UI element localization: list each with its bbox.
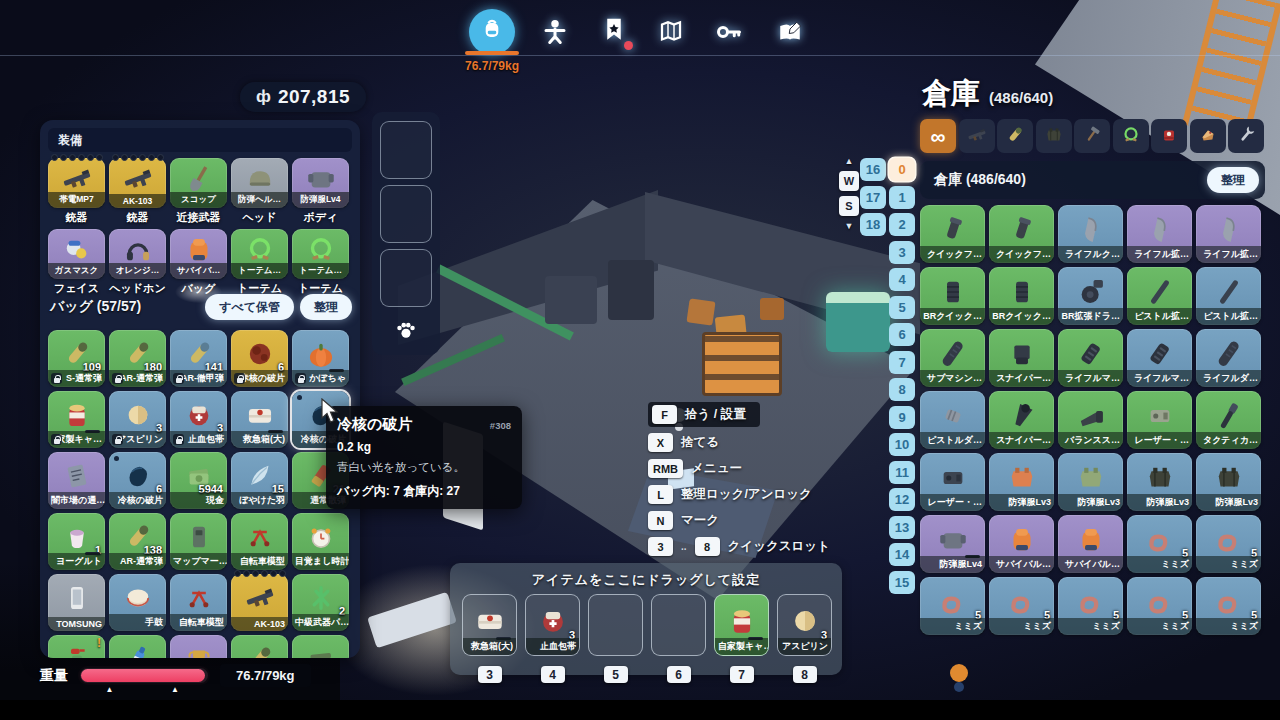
wrench-icon: [1235, 124, 1257, 149]
item-tile[interactable]: 救急箱(大): [231, 391, 288, 448]
storage-machine[interactable]: [826, 292, 890, 352]
item-label: 防弾服Lv3: [989, 494, 1054, 511]
item-tile[interactable]: TOMSUNG: [48, 574, 105, 631]
item-label: AR-通常弾: [109, 553, 166, 570]
item-label: スナイパー…: [989, 370, 1054, 387]
item-label: クイックフ…: [920, 246, 985, 263]
page-list-secondary: 161718: [860, 158, 886, 236]
quest-icon[interactable]: [598, 16, 630, 48]
lock-icon: [112, 434, 123, 445]
quickslot-number: 5: [604, 666, 628, 683]
money-display: ф 207,815: [240, 82, 366, 112]
item-tile[interactable]: 防弾服Lv3: [1058, 453, 1123, 511]
item-label: ライフルマ…: [1058, 370, 1123, 387]
page-button-7[interactable]: 7: [889, 351, 915, 374]
item-tag: ガスマスク: [48, 263, 105, 279]
item-tile[interactable]: 3止血包帯: [170, 391, 227, 448]
item-tile[interactable]: ピストル拡…: [1127, 267, 1192, 325]
page-list-primary: 0123456789101112131415: [889, 158, 915, 594]
item-label: マップマー…: [170, 553, 227, 570]
page-button-15[interactable]: 15: [889, 571, 915, 594]
item-tile[interactable]: 5ミミズ: [1196, 515, 1261, 573]
item-tile[interactable]: サバイバル…: [989, 515, 1054, 573]
npc-bottom[interactable]: [950, 664, 968, 682]
keybind-menu: F拾う / 設置X捨てるRMBメニューL整理ロック/アンロックNマーク3..8ク…: [648, 402, 830, 557]
page-button-12[interactable]: 12: [889, 488, 915, 511]
item-label: ライフルク…: [1058, 246, 1123, 263]
item-tile[interactable]: 目覚まし時計: [292, 513, 349, 570]
item-tile[interactable]: ライフル拡…: [1127, 205, 1192, 263]
lock-icon: [234, 373, 245, 384]
quickslot-4[interactable]: 3止血包帯: [525, 594, 580, 656]
keycap: X: [648, 433, 673, 452]
item-tile[interactable]: [170, 635, 227, 658]
item-tile[interactable]: BRクイック…: [989, 267, 1054, 325]
quickslot-6[interactable]: [651, 594, 706, 656]
item-label: ピストル拡…: [1127, 308, 1192, 325]
page-button-5[interactable]: 5: [889, 296, 915, 319]
item-label: 目覚まし時計: [292, 553, 349, 570]
item-tile[interactable]: 自転車模型: [170, 574, 227, 631]
item-tile[interactable]: [109, 635, 166, 658]
page-button-2[interactable]: 2: [889, 213, 915, 236]
warehouse-filter-tabs: ∞: [920, 119, 1264, 153]
item-tile[interactable]: AK-103: [109, 158, 166, 208]
store-all-button[interactable]: すべて保管: [205, 294, 294, 320]
item-label: ライフルダ…: [1196, 370, 1261, 387]
keybind-label: クイックスロット: [728, 538, 830, 555]
page-up-icon[interactable]: ▲: [845, 156, 854, 166]
item-tile[interactable]: 15ぼやけた羽: [231, 452, 288, 509]
game-screen: 76.7/79kg ф 207,815 装備 帯電MP7銃器AK-103銃器スコ…: [0, 0, 1280, 720]
page-button-6[interactable]: 6: [889, 323, 915, 346]
mark-dot: [114, 456, 119, 461]
item-label: ミミズ: [1196, 556, 1261, 573]
item-label: バランスス…: [1058, 432, 1123, 449]
equipment-slot: スコップ近接武器: [170, 158, 227, 225]
cake-icon: [1197, 124, 1219, 149]
item-tile[interactable]: ライフル拡…: [1196, 205, 1261, 263]
item-label: タクティカ…: [1196, 432, 1261, 449]
item-tile[interactable]: ライフルダ…: [1196, 329, 1261, 387]
item-tag: 防弾ヘル…: [231, 192, 288, 208]
item-tile[interactable]: オレンジ…: [109, 229, 166, 279]
item-tag: オレンジ…: [109, 263, 166, 279]
equipment-slot: 防弾ヘル…ヘッド: [231, 158, 288, 225]
quickslot-number: 4: [541, 666, 565, 683]
page-button-9[interactable]: 9: [889, 406, 915, 429]
page-button-16[interactable]: 16: [860, 158, 886, 181]
item-tile[interactable]: 5ミミズ: [920, 577, 985, 635]
mouse-cursor: [320, 398, 342, 424]
equipment-slot: オレンジ…ヘッドホン: [109, 229, 166, 296]
item-label: 手鼓: [109, 614, 166, 631]
item-label: ミミズ: [1058, 618, 1123, 635]
item-tile[interactable]: 5ミミズ: [1127, 515, 1192, 573]
quickslot-number: 7: [730, 666, 754, 683]
item-label: TOMSUNG: [48, 617, 105, 631]
all-filter[interactable]: ∞: [920, 119, 956, 153]
item-tile[interactable]: サバイバル…: [1058, 515, 1123, 573]
tooltip-description: 青白い光を放っている。: [337, 460, 511, 475]
warehouse-subheader: 倉庫 (486/640) 整理: [920, 161, 1265, 199]
lock-icon: [51, 373, 62, 384]
keycap: 8: [695, 537, 720, 556]
item-tile[interactable]: 5944現金: [170, 452, 227, 509]
pet-slot[interactable]: [380, 249, 432, 307]
item-tile[interactable]: 5ミミズ: [1127, 577, 1192, 635]
keybind-row: L整理ロック/アンロック: [648, 484, 830, 505]
item-tag: 防弾服Lv4: [292, 192, 349, 208]
tooltip-counts: バッグ内: 7 倉庫内: 27: [337, 483, 511, 500]
item-label: ピストル拡…: [1196, 308, 1261, 325]
bag-header: バッグ (57/57) すべて保管 整理: [50, 294, 352, 320]
quickslot-cell: 自家製キャ…7: [714, 594, 769, 656]
equipment-slot: トーテム…トーテム: [231, 229, 288, 296]
item-label: サバイバル…: [1058, 556, 1123, 573]
item-tile[interactable]: 109S-通常弾: [48, 330, 105, 387]
item-tile[interactable]: 180AR-通常弾: [109, 330, 166, 387]
notification-dot: [624, 41, 633, 50]
accessory-filter[interactable]: [1113, 119, 1149, 153]
item-tile[interactable]: ライフルマ…: [1058, 329, 1123, 387]
item-label: スナイパー…: [989, 432, 1054, 449]
mark-dot: [297, 395, 302, 400]
item-label: クイックフ…: [989, 246, 1054, 263]
item-tile[interactable]: 防弾服Lv4: [292, 158, 349, 208]
item-tile[interactable]: クイックフ…: [920, 205, 985, 263]
item-tile[interactable]: ライフルマ…: [1127, 329, 1192, 387]
key-s: S: [839, 196, 859, 216]
quickslot-5[interactable]: [588, 594, 643, 656]
quickslot-cell: 6: [651, 594, 706, 656]
quickslot-number: 3: [478, 666, 502, 683]
item-tile[interactable]: サバイバ…: [170, 229, 227, 279]
item-label: AK-103: [231, 617, 288, 631]
keybind-label: マーク: [681, 512, 719, 529]
machine: [608, 260, 654, 320]
keybind-row: F拾う / 設置: [648, 402, 760, 427]
page-down-icon[interactable]: ▼: [845, 221, 854, 231]
item-tile[interactable]: トーテム…: [231, 229, 288, 279]
warehouse-title: 倉庫 (486/640): [922, 74, 1053, 114]
item-tile[interactable]: 帯電MP7: [48, 158, 105, 208]
item-label: 自家製キャ…: [715, 638, 768, 655]
bullet-icon: [231, 635, 288, 658]
keybind-row: Nマーク: [648, 510, 830, 531]
quickslot-3[interactable]: 救急箱(大): [462, 594, 517, 656]
item-tile[interactable]: スナイパー…: [989, 391, 1054, 449]
quickslot-cell: 3アスピリン8: [777, 594, 832, 656]
key-icon[interactable]: [713, 16, 745, 48]
page-button-11[interactable]: 11: [889, 461, 915, 484]
item-tile[interactable]: 6赤核の破片: [231, 330, 288, 387]
item-label: ミミズ: [1196, 618, 1261, 635]
inventory-tab[interactable]: [469, 9, 515, 55]
crate: [686, 298, 715, 325]
item-tile[interactable]: レーザー・…: [920, 453, 985, 511]
equipment-slot: 防弾服Lv4ボディ: [292, 158, 349, 225]
item-tile[interactable]: クイックフ…: [989, 205, 1054, 263]
item-label: 闇市場の通…: [48, 492, 105, 509]
item-label: 自転車模型: [231, 553, 288, 570]
page-button-0[interactable]: 0: [889, 158, 915, 181]
item-label: ミミズ: [1127, 618, 1192, 635]
key-range-sep: ..: [681, 541, 687, 552]
item-label: ライフル拡…: [1127, 246, 1192, 263]
item-tile[interactable]: タクティカ…: [1196, 391, 1261, 449]
bag-grid: 109S-通常弾180AR-通常弾141AR-徹甲弾6赤核の破片かぼちゃ家製キャ…: [48, 330, 349, 658]
item-tooltip: 冷核の破片 #308 0.2 kg 青白い光を放っている。 バッグ内: 7 倉庫…: [326, 406, 522, 509]
bottle-icon: [109, 635, 166, 658]
item-label: レーザー・…: [1127, 432, 1192, 449]
item-label: 救急箱(大): [463, 638, 516, 655]
backpack-icon: [478, 16, 506, 48]
sort-bag-button[interactable]: 整理: [300, 294, 352, 320]
item-tile[interactable]: 防弾服Lv3: [989, 453, 1054, 511]
item-label: ライフル拡…: [1196, 246, 1261, 263]
equipment-slot: AK-103銃器: [109, 158, 166, 225]
lock-icon: [295, 373, 306, 384]
item-tag: トーテム…: [231, 263, 288, 279]
item-tile[interactable]: 3アスピリン: [109, 391, 166, 448]
hammer-icon: [1081, 124, 1103, 149]
keybind-label: 整理ロック/アンロック: [681, 486, 812, 503]
quickslot-row: 救急箱(大)33止血包帯456自家製キャ…73アスピリン8: [462, 594, 832, 656]
keycap: L: [648, 485, 673, 504]
item-tile[interactable]: 防弾服Lv4: [920, 515, 985, 573]
cabinet: [702, 332, 782, 396]
crate: [760, 298, 784, 320]
quickslot-bar: アイテムをここにドラッグして設定 救急箱(大)33止血包帯456自家製キャ…73…: [450, 563, 842, 675]
keybind-label: メニュー: [691, 460, 742, 477]
keybind-row: X捨てる: [648, 432, 830, 453]
top-divider: [0, 55, 1280, 56]
item-tag: トーテム…: [292, 263, 349, 279]
trophy-icon: [170, 635, 227, 658]
item-label: ライフルマ…: [1127, 370, 1192, 387]
tool-filter[interactable]: [1074, 119, 1110, 153]
item-tile[interactable]: 5ミミズ: [1196, 577, 1261, 635]
weight-label: 重量: [40, 667, 68, 685]
item-tile[interactable]: AK-103: [231, 574, 288, 631]
item-tile[interactable]: [231, 635, 288, 658]
weight-progress: ▲ ▲: [78, 666, 210, 685]
ammo-filter[interactable]: [997, 119, 1033, 153]
item-tile[interactable]: !: [48, 635, 105, 658]
item-label: ヨーグルト: [48, 553, 105, 570]
warehouse-title-text: 倉庫: [922, 74, 980, 114]
item-label: サバイバル…: [989, 556, 1054, 573]
item-tile[interactable]: マップマー…: [170, 513, 227, 570]
page-button-18[interactable]: 18: [860, 213, 886, 236]
equipment-header: 装備: [48, 128, 352, 152]
item-tag: AK-103: [109, 194, 166, 208]
threshold-marker: ▲: [106, 685, 114, 694]
lock-icon: [173, 373, 184, 384]
item-tile[interactable]: 自転車模型: [231, 513, 288, 570]
inventory-tab-underline: [465, 51, 519, 55]
vest_black-icon: [1043, 124, 1065, 149]
item-tile[interactable]: 6冷核の破片: [109, 452, 166, 509]
food-filter[interactable]: [1190, 119, 1226, 153]
item-tile[interactable]: 手鼓: [109, 574, 166, 631]
pet-slot[interactable]: [380, 185, 432, 243]
item-label: レーザー・…: [920, 494, 985, 511]
item-tile[interactable]: BR拡張ドラ…: [1058, 267, 1123, 325]
equipment-slot: サバイバ…バッグ: [170, 229, 227, 296]
equipment-grid: 帯電MP7銃器AK-103銃器スコップ近接武器防弾ヘル…ヘッド防弾服Lv4ボディ…: [48, 158, 349, 296]
equipment-slot-label: 近接武器: [170, 210, 227, 225]
keycap: RMB: [648, 459, 683, 478]
item-label: サブマシン…: [920, 370, 985, 387]
lock-icon: [112, 373, 123, 384]
keybind-row: RMBメニュー: [648, 458, 830, 479]
redbox-icon: [1158, 124, 1180, 149]
item-tile[interactable]: スナイパー…: [989, 329, 1054, 387]
warehouse-grid: クイックフ…クイックフ…ライフルク…ライフル拡…ライフル拡…BRクイック…BRク…: [920, 205, 1261, 635]
quickslot-8[interactable]: 3アスピリン: [777, 594, 832, 656]
item-tile[interactable]: 2中級武器パ…: [292, 574, 349, 631]
warehouse-capacity: (486/640): [989, 89, 1053, 106]
item-tag: スコップ: [170, 192, 227, 208]
keybind-label: 捨てる: [681, 434, 719, 451]
parts-filter[interactable]: [1228, 119, 1264, 153]
ring-icon: [1120, 124, 1142, 149]
lock-icon: [51, 434, 62, 445]
item-tile[interactable]: ピストル拡…: [1196, 267, 1261, 325]
equipment-slot: ガスマスクフェイス: [48, 229, 105, 296]
pet-slot[interactable]: [380, 121, 432, 179]
item-tile[interactable]: 1ヨーグルト: [48, 513, 105, 570]
item-tile[interactable]: 家製キャ…: [48, 391, 105, 448]
weapon-filter[interactable]: [959, 119, 995, 153]
item-label: 防弾服Lv3: [1196, 494, 1261, 511]
item-tile[interactable]: 防弾服Lv3: [1127, 453, 1192, 511]
item-tag: 帯電MP7: [48, 192, 105, 208]
item-label: 止血包帯: [526, 638, 579, 655]
keybind-label: 拾う / 設置: [685, 406, 746, 423]
item-tile[interactable]: ピストルダ…: [920, 391, 985, 449]
page-button-4[interactable]: 4: [889, 268, 915, 291]
item-tile[interactable]: [292, 635, 349, 658]
quickslot-number: 6: [667, 666, 691, 683]
weight-progress-fill: [81, 669, 205, 682]
item-tile[interactable]: ライフルク…: [1058, 205, 1123, 263]
map-icon[interactable]: [655, 16, 687, 48]
item-tag: サバイバ…: [170, 263, 227, 279]
bullet-icon: [1004, 124, 1026, 149]
quickslot-number: 8: [793, 666, 817, 683]
machine: [545, 276, 597, 324]
tooltip-weight: 0.2 kg: [337, 440, 511, 454]
infinity-icon: ∞: [931, 126, 946, 147]
quickslot-hint: アイテムをここにドラッグして設定: [450, 571, 842, 589]
item-label: ミミズ: [920, 618, 985, 635]
item-tile[interactable]: かぼちゃ: [292, 330, 349, 387]
item-tile[interactable]: サブマシン…: [920, 329, 985, 387]
page-button-10[interactable]: 10: [889, 433, 915, 456]
quickslot-7[interactable]: 自家製キャ…: [714, 594, 769, 656]
page-nav-keys: ▲ W S ▼: [838, 156, 860, 231]
pet-panel: [372, 112, 440, 355]
keycap: F: [652, 405, 677, 424]
quickslot-cell: 5: [588, 594, 643, 656]
keycap: 3: [648, 537, 673, 556]
character-icon[interactable]: [539, 16, 571, 48]
medical-filter[interactable]: [1151, 119, 1187, 153]
item-tile[interactable]: 141AR-徹甲弾: [170, 330, 227, 387]
item-label: 防弾服Lv4: [920, 556, 985, 573]
warehouse-subtitle: 倉庫 (486/640): [934, 171, 1026, 189]
item-label: 現金: [170, 492, 227, 509]
page-button-17[interactable]: 17: [860, 186, 886, 209]
armor-filter[interactable]: [1036, 119, 1072, 153]
item-label: ミミズ: [1127, 556, 1192, 573]
page-button-8[interactable]: 8: [889, 378, 915, 401]
item-label: ぼやけた羽: [231, 492, 288, 509]
item-tile[interactable]: ガスマスク: [48, 229, 105, 279]
item-tile[interactable]: 防弾服Lv3: [1196, 453, 1261, 511]
item-tile[interactable]: トーテム…: [292, 229, 349, 279]
equipment-title: 装備: [58, 132, 82, 149]
alert-badge: !: [97, 636, 101, 650]
page-button-13[interactable]: 13: [889, 516, 915, 539]
page-button-14[interactable]: 14: [889, 543, 915, 566]
weight-readout: 76.7/79kg: [452, 59, 532, 73]
item-tile[interactable]: BRクイック…: [920, 267, 985, 325]
item-tile[interactable]: 防弾ヘル…: [231, 158, 288, 208]
folded-icon: [292, 635, 349, 658]
item-label: BRクイック…: [989, 308, 1054, 325]
sort-warehouse-button[interactable]: 整理: [1207, 167, 1259, 193]
weight-value: 76.7/79kg: [220, 664, 311, 687]
quickslot-cell: 救急箱(大)3: [462, 594, 517, 656]
item-label: 防弾服Lv3: [1127, 494, 1192, 511]
item-tile[interactable]: レーザー・…: [1127, 391, 1192, 449]
page-button-3[interactable]: 3: [889, 241, 915, 264]
item-label: ミミズ: [989, 618, 1054, 635]
item-label: 防弾服Lv3: [1058, 494, 1123, 511]
item-label: BRクイック…: [920, 308, 985, 325]
item-label: BR拡張ドラ…: [1058, 308, 1123, 325]
equipment-slot-label: ヘッド: [231, 210, 288, 225]
page-button-1[interactable]: 1: [889, 186, 915, 209]
item-label: 救急箱(大): [231, 431, 288, 448]
item-tile[interactable]: スコップ: [170, 158, 227, 208]
item-tile[interactable]: バランスス…: [1058, 391, 1123, 449]
gun-icon: [966, 124, 988, 149]
equipment-slot-label: 銃器: [48, 210, 105, 225]
item-tile[interactable]: 5ミミズ: [989, 577, 1054, 635]
item-label: 中級武器パ…: [292, 614, 349, 631]
item-tile[interactable]: 5ミミズ: [1058, 577, 1123, 635]
key-w: W: [839, 171, 859, 191]
lock-icon: [173, 434, 184, 445]
bag-title: バッグ (57/57): [50, 298, 199, 316]
money-amount: 207,815: [278, 86, 350, 108]
currency-icon: ф: [256, 87, 271, 107]
tooltip-id: #308: [490, 420, 511, 431]
item-tile[interactable]: 闇市場の通…: [48, 452, 105, 509]
equipment-slot: 帯電MP7銃器: [48, 158, 105, 225]
equipment-slot: トーテム…トーテム: [292, 229, 349, 296]
keybind-row: 3..8クイックスロット: [648, 536, 830, 557]
weight-bar: 重量 ▲ ▲ 76.7/79kg: [40, 664, 311, 687]
item-tile[interactable]: 138AR-通常弾: [109, 513, 166, 570]
journal-icon[interactable]: [774, 16, 806, 48]
item-label: アスピリン: [778, 638, 831, 655]
